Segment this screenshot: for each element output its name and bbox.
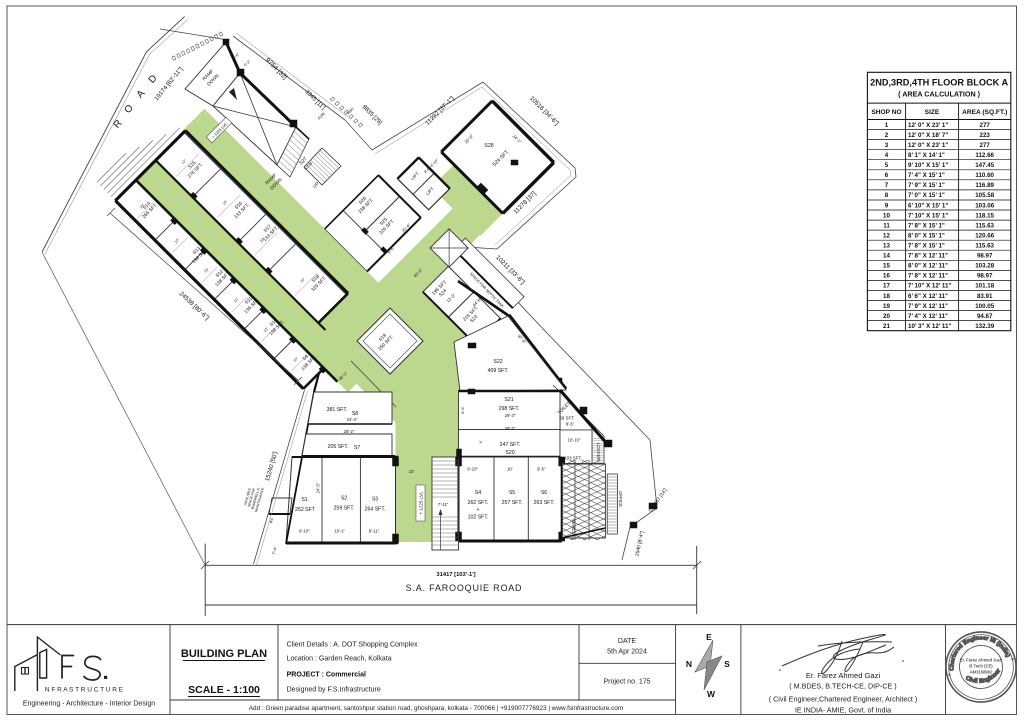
- svg-text:12’ 0" X 18’ 7": 12’ 0" X 18’ 7": [908, 132, 948, 139]
- svg-text:8'-6": 8'-6": [461, 406, 465, 414]
- svg-text:S5: S5: [509, 490, 515, 496]
- svg-text:5th Apr 2024: 5th Apr 2024: [607, 649, 647, 656]
- svg-text:247 SFT.: 247 SFT.: [500, 442, 521, 448]
- svg-text:10': 10': [507, 467, 513, 472]
- svg-text:1: 1: [885, 122, 889, 129]
- svg-text:8’ 0" X 15’ 1": 8’ 0" X 15’ 1": [908, 233, 945, 240]
- svg-text:15: 15: [883, 263, 890, 270]
- svg-text:6’ 6" X 12’ 11": 6’ 6" X 12’ 11": [908, 293, 948, 300]
- svg-text:Designed by F.S.Infrastructure: Designed by F.S.Infrastructure: [287, 687, 381, 694]
- svg-text:DATE: DATE: [618, 638, 636, 645]
- svg-text:120.66: 120.66: [975, 233, 994, 240]
- svg-text:N F R A S T R U C T U R E: N F R A S T R U C T U R E: [45, 687, 124, 694]
- svg-text:24'-5": 24'-5": [315, 482, 320, 493]
- svg-text:S20: S20: [505, 450, 514, 456]
- svg-text:102 SFT.: 102 SFT.: [468, 515, 489, 521]
- svg-text:12’ 0" X 23’ 1": 12’ 0" X 23’ 1": [908, 122, 948, 129]
- svg-text:9'-10": 9'-10": [299, 529, 310, 534]
- svg-text:8'-5": 8'-5": [566, 422, 575, 427]
- svg-text:132.39: 132.39: [975, 323, 994, 330]
- svg-text:7’ 8" X 12’ 11": 7’ 8" X 12’ 11": [908, 273, 948, 280]
- svg-text:115.63: 115.63: [975, 222, 994, 229]
- svg-text:7’ 8" X 15’ 1": 7’ 8" X 15’ 1": [908, 222, 945, 229]
- svg-text:N: N: [686, 659, 692, 669]
- svg-text:7’ 4" X 12’ 11": 7’ 4" X 12’ 11": [908, 313, 948, 320]
- svg-text:S: S: [724, 659, 730, 669]
- svg-text:409 SFT.: 409 SFT.: [488, 368, 509, 374]
- svg-text:101.18: 101.18: [975, 283, 994, 290]
- svg-text:12’ 0" X 23’ 1": 12’ 0" X 23’ 1": [908, 142, 948, 149]
- svg-text:28'-2": 28'-2": [344, 429, 355, 434]
- svg-text:9’ 10" X 15’ 1": 9’ 10" X 15’ 1": [908, 162, 948, 169]
- svg-text:7’ 0" X 15’ 1": 7’ 0" X 15’ 1": [908, 192, 945, 199]
- svg-text:Er. Farez Ahmed Gazi: Er. Farez Ahmed Gazi: [960, 658, 1003, 663]
- svg-text:257 SFT.: 257 SFT.: [502, 500, 523, 506]
- svg-text:5: 5: [885, 162, 889, 169]
- svg-text:17: 17: [883, 283, 890, 290]
- svg-text:VEHICLE: VEHICLE: [571, 519, 576, 538]
- svg-text:31417 [103'-1']: 31417 [103'-1']: [436, 572, 475, 578]
- svg-text:S7: S7: [354, 445, 360, 451]
- svg-text:103 SFT.: 103 SFT.: [564, 456, 582, 461]
- svg-text:10'-10": 10'-10": [568, 438, 582, 443]
- svg-text:( Civil Engineer,Chartered Eng: ( Civil Engineer,Chartered Engineer, Arc…: [769, 695, 918, 704]
- svg-text:6: 6: [885, 172, 889, 179]
- svg-text:( M.BDES, B.TECH-CE, DIP-CE ): ( M.BDES, B.TECH-CE, DIP-CE ): [789, 682, 896, 691]
- svg-text:7’ 8" X 15’ 1": 7’ 8" X 15’ 1": [908, 243, 945, 250]
- svg-text:S28: S28: [484, 143, 493, 149]
- svg-text:262 SFT.: 262 SFT.: [468, 500, 489, 506]
- svg-text:6’ 10" X 15’ 1": 6’ 10" X 15’ 1": [908, 202, 948, 209]
- svg-text:205 SFT.: 205 SFT.: [328, 444, 349, 450]
- svg-text:S.A. FAROOQUIE ROAD: S.A. FAROOQUIE ROAD: [406, 583, 523, 593]
- svg-text:105.58: 105.58: [975, 192, 994, 199]
- svg-text:Engineering - Architecture - I: Engineering - Architecture - Interior De…: [23, 701, 155, 708]
- svg-text:7’ 4" X 15’ 1": 7’ 4" X 15’ 1": [908, 172, 945, 179]
- svg-text:Project no. 175: Project no. 175: [603, 679, 650, 686]
- svg-text:OFFICE: OFFICE: [618, 491, 623, 507]
- svg-text:83.91: 83.91: [977, 293, 993, 300]
- svg-text:S6: S6: [541, 490, 547, 496]
- svg-text:7: 7: [885, 182, 889, 189]
- svg-text:11: 11: [883, 222, 890, 229]
- svg-text:7’ 9" X 12’ 11": 7’ 9" X 12’ 11": [908, 303, 948, 310]
- svg-text:3: 3: [885, 142, 889, 149]
- svg-text:264 SFT.: 264 SFT.: [365, 507, 386, 513]
- svg-text:14: 14: [883, 253, 890, 260]
- svg-text:21: 21: [883, 323, 890, 330]
- svg-text:9'-5": 9'-5": [537, 467, 546, 472]
- svg-text:7’ 10" X 15’ 1": 7’ 10" X 15’ 1": [908, 212, 948, 219]
- svg-text:103.28: 103.28: [975, 263, 994, 270]
- svg-text:19: 19: [883, 303, 890, 310]
- svg-text:112.66: 112.66: [975, 152, 994, 159]
- svg-text:263 SFT.: 263 SFT.: [534, 500, 555, 506]
- svg-text:AREA (SQ.FT.): AREA (SQ.FT.): [962, 109, 1007, 116]
- svg-text:6': 6': [479, 440, 483, 443]
- svg-text:Er. Farez Ahmed Gazi: Er. Farez Ahmed Gazi: [806, 671, 881, 680]
- svg-text:381 SFT.: 381 SFT.: [327, 407, 348, 413]
- svg-text:10': 10': [409, 469, 415, 474]
- svg-text:S2: S2: [341, 496, 347, 502]
- svg-text:298 SFT.: 298 SFT.: [499, 406, 520, 412]
- svg-text:147.45: 147.45: [975, 162, 994, 169]
- svg-text:10’ 3" X 12’ 11": 10’ 3" X 12’ 11": [908, 323, 951, 330]
- svg-text:94.67: 94.67: [977, 313, 993, 320]
- svg-text:10'-1": 10'-1": [334, 529, 345, 534]
- svg-text:IE INDIA- AMIE, Govt. of India: IE INDIA- AMIE, Govt. of India: [795, 706, 891, 715]
- svg-text:12: 12: [883, 233, 890, 240]
- svg-text:LOCKER: LOCKER: [596, 443, 601, 461]
- svg-text:SIZE: SIZE: [925, 109, 940, 116]
- svg-text:7’ 10" X 12’ 11": 7’ 10" X 12’ 11": [908, 283, 951, 290]
- svg-text:SHOP NO: SHOP NO: [871, 109, 901, 116]
- svg-text:Client Details : A. DOT Shoppi: Client Details : A. DOT Shopping Complex: [287, 642, 418, 649]
- svg-text:118.15: 118.15: [975, 212, 994, 219]
- svg-text:98.97: 98.97: [977, 253, 993, 260]
- svg-text:9'-10": 9'-10": [467, 467, 478, 472]
- svg-text:277: 277: [980, 142, 991, 149]
- svg-text:4: 4: [885, 152, 889, 159]
- svg-text:110.60: 110.60: [975, 172, 994, 179]
- svg-text:18: 18: [883, 293, 890, 300]
- svg-text:24'-4": 24'-4": [347, 417, 358, 422]
- svg-text:E: E: [706, 632, 712, 642]
- svg-text:PROJECT : Commercial: PROJECT : Commercial: [287, 672, 366, 679]
- svg-text:7’ 8" X 12’ 11": 7’ 8" X 12’ 11": [908, 253, 948, 260]
- svg-text:S1: S1: [301, 497, 307, 503]
- svg-text:98.97: 98.97: [977, 273, 993, 280]
- svg-text:13: 13: [883, 243, 890, 250]
- svg-text:252 SFT: 252 SFT: [295, 507, 316, 513]
- svg-text:68 SFT.: 68 SFT.: [559, 416, 574, 421]
- svg-text:29'-3": 29'-3": [505, 426, 516, 431]
- svg-text:W: W: [707, 689, 716, 699]
- svg-text:+: +: [476, 507, 479, 513]
- svg-text:7’ 9" X 15’ 1": 7’ 9" X 15’ 1": [908, 182, 945, 189]
- svg-text:8’ 0" X 12’ 11": 8’ 0" X 12’ 11": [908, 263, 948, 270]
- svg-text:Add : Green paradise apartment: Add : Green paradise apartment, santoshp…: [249, 705, 623, 712]
- svg-text:2ND,3RD,4TH FLOOR BLOCK A: 2ND,3RD,4TH FLOOR BLOCK A: [870, 78, 1008, 88]
- svg-text:S4: S4: [475, 490, 481, 496]
- svg-text:BUILDING PLAN: BUILDING PLAN: [181, 648, 267, 660]
- svg-text:100.05: 100.05: [975, 303, 994, 310]
- svg-text:8: 8: [885, 192, 889, 199]
- svg-text:S3: S3: [372, 497, 378, 503]
- svg-text:16: 16: [883, 273, 890, 280]
- svg-text:29'-3": 29'-3": [505, 413, 516, 418]
- svg-text:259 SFT.: 259 SFT.: [334, 506, 355, 512]
- svg-text:103.06: 103.06: [975, 202, 994, 209]
- svg-text:7'-11": 7'-11": [438, 502, 449, 507]
- svg-text:9'-11": 9'-11": [369, 529, 380, 534]
- svg-text:+ 1225 LVL: + 1225 LVL: [419, 491, 424, 515]
- svg-text:2: 2: [885, 132, 889, 139]
- svg-text:( AREA CALCULATION ): ( AREA CALCULATION ): [898, 90, 981, 99]
- svg-text:8’ 1" X 14’ 1": 8’ 1" X 14’ 1": [908, 152, 945, 159]
- svg-text:SCALE - 1:100: SCALE - 1:100: [188, 684, 260, 696]
- svg-text:116.89: 116.89: [975, 182, 994, 189]
- svg-text:277: 277: [980, 122, 991, 129]
- svg-text:AM3158902: AM3158902: [970, 670, 993, 675]
- svg-text:115.63: 115.63: [975, 243, 994, 250]
- svg-text:20: 20: [883, 313, 890, 320]
- svg-text:10: 10: [883, 212, 890, 219]
- svg-text:9: 9: [885, 202, 889, 209]
- svg-text:B.Tech (CE): B.Tech (CE): [969, 664, 993, 669]
- svg-text:Location : Garden Reach, Kolka: Location : Garden Reach, Kolkata: [287, 656, 392, 663]
- svg-text:S21: S21: [504, 397, 513, 403]
- svg-text:223: 223: [980, 132, 991, 139]
- svg-text:S22: S22: [493, 359, 502, 365]
